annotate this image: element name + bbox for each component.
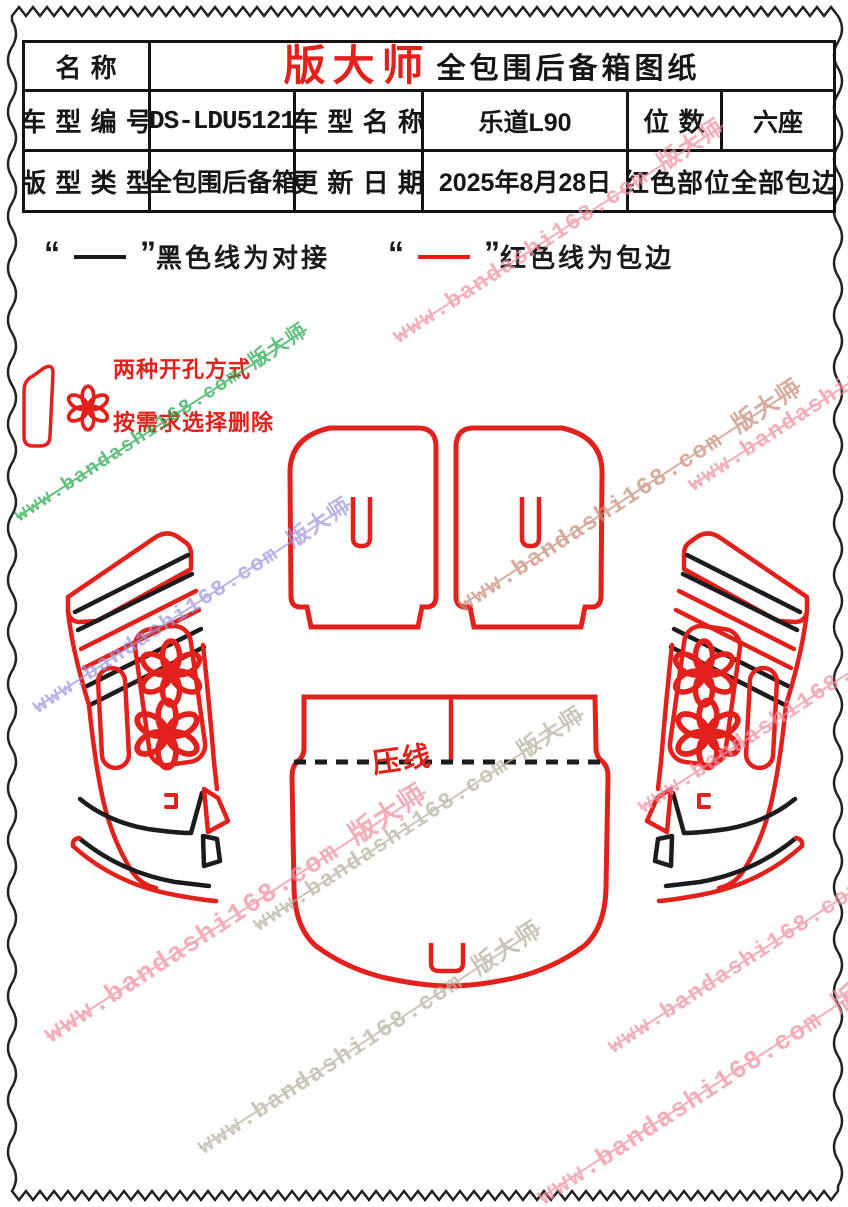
red-line-swatch: [418, 255, 470, 259]
quote-open: “: [388, 237, 404, 269]
press-line-label: 压线: [370, 734, 435, 782]
pattern-type-value: 全包围后备箱: [148, 149, 293, 210]
quote-open: “: [44, 237, 60, 269]
quote-close: ”: [484, 237, 500, 269]
trunk-mat-notch: [431, 943, 463, 971]
brand-name: 版大师: [283, 45, 430, 87]
black-line-label: 黑色线为对接: [156, 238, 330, 275]
update-date-label: 更 新 日 期: [293, 149, 421, 210]
seatback-piece-left: [290, 428, 436, 627]
black-line-swatch: [74, 255, 126, 259]
seats-label: 位 数: [626, 89, 720, 149]
model-name-value: 乐道L90: [421, 89, 626, 149]
side-piece-right: [647, 533, 807, 901]
line-legend: “ ” 黑色线为对接 “ ” 红色线为包边: [44, 238, 674, 275]
hole-note-line1: 两种开孔方式: [113, 352, 251, 384]
flower-hole-icon: [66, 386, 109, 430]
pattern-type-label: 版 型 类 型: [25, 149, 148, 210]
model-code-value: BDS-LDU5121W: [148, 89, 293, 149]
hole-note-line2: 按需求选择删除: [113, 405, 274, 437]
name-label: 名 称: [25, 43, 148, 89]
red-line-label: 红色线为包边: [500, 238, 674, 275]
update-date-value: 2025年8月28日: [421, 149, 626, 210]
model-name-label: 车 型 名 称: [293, 89, 421, 149]
sheet-title-text: 全包围后备箱图纸: [437, 45, 701, 87]
edging-note: 红色部位全部包边: [626, 149, 833, 210]
header-table: 名 称 版大师 全包围后备箱图纸 车 型 编 号 BDS-LDU5121W 车 …: [22, 40, 836, 213]
seats-value: 六座: [720, 89, 833, 149]
model-code-label: 车 型 编 号: [25, 89, 148, 149]
pattern-sheet: 名 称 版大师 全包围后备箱图纸 车 型 编 号 BDS-LDU5121W 车 …: [0, 0, 848, 1207]
seatback-piece-right: [456, 428, 602, 627]
corner-strip-piece: [24, 366, 53, 446]
sheet-title: 版大师 全包围后备箱图纸: [148, 43, 833, 89]
quote-close: ”: [140, 237, 156, 269]
side-piece-left: [68, 533, 228, 901]
trunk-mat-piece: [292, 697, 608, 986]
